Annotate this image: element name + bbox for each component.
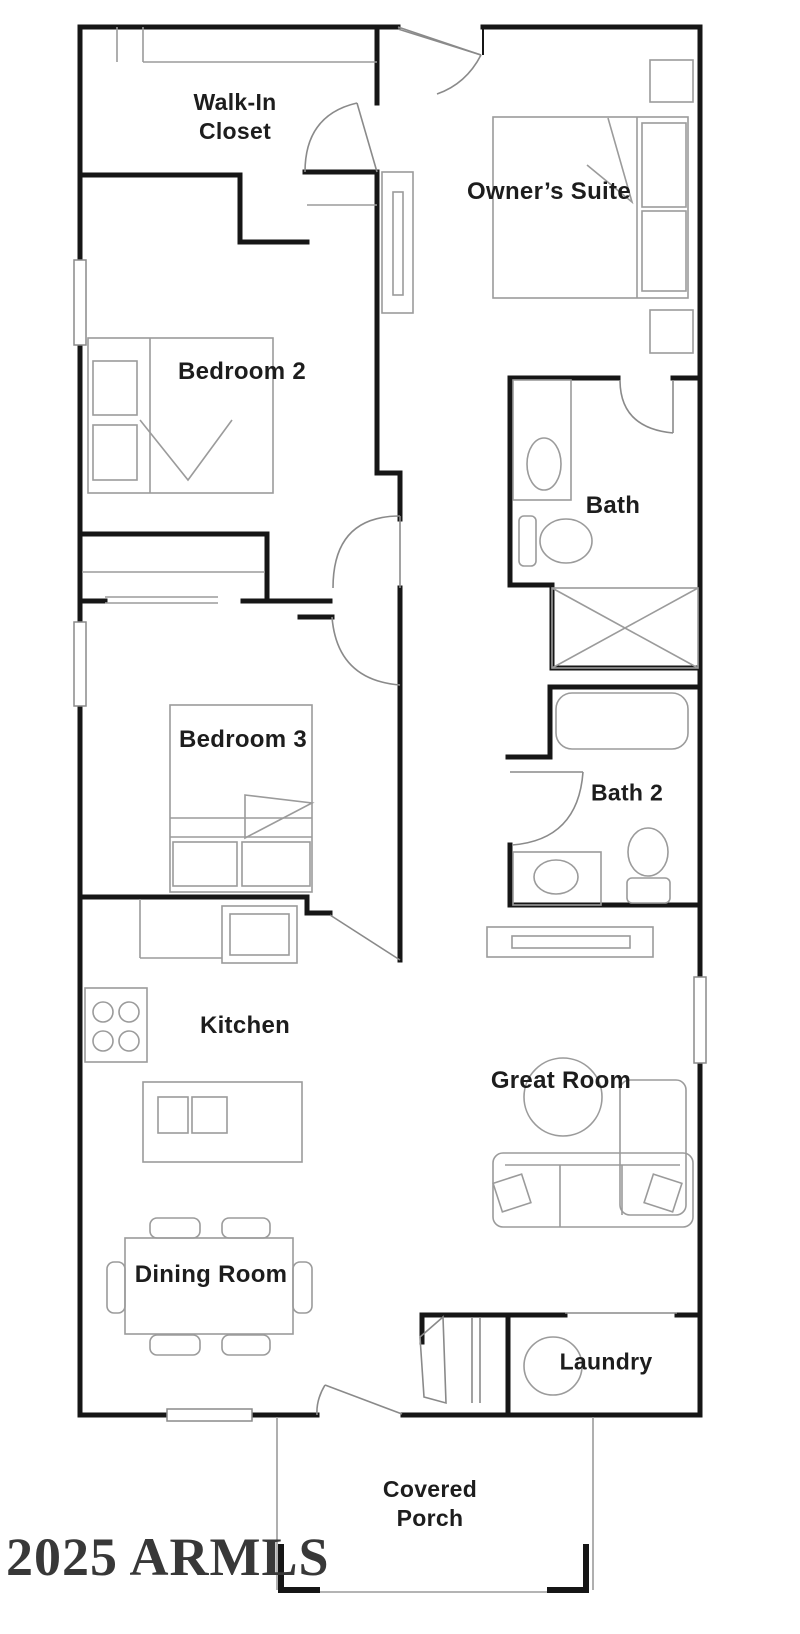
room-label-great-room: Great Room <box>491 1066 631 1096</box>
watermark: 2025 ARMLS <box>6 1526 330 1588</box>
interior-walls <box>80 27 700 1415</box>
stove-icon <box>85 988 147 1062</box>
bathtub-icon <box>556 693 688 749</box>
floor-plan: Walk-In Closet Owner’s Suite Bedroom 2 B… <box>0 0 800 1634</box>
floor-plan-drawing <box>0 0 800 1634</box>
window-icon <box>694 977 706 1063</box>
room-label-bath-2: Bath 2 <box>591 778 663 807</box>
window-icon <box>74 260 86 345</box>
room-label-covered-porch: Covered Porch <box>383 1475 477 1533</box>
door-swing-icon <box>398 29 483 94</box>
sofa-icon <box>493 1080 693 1227</box>
nightstand-icon <box>650 310 693 353</box>
room-label-dining-room: Dining Room <box>135 1260 288 1290</box>
toilet-icon <box>519 516 592 566</box>
sink-vanity-icon <box>513 852 601 905</box>
room-label-kitchen: Kitchen <box>200 1011 290 1041</box>
room-label-owners-suite: Owner’s Suite <box>467 177 631 207</box>
room-label-bath: Bath <box>586 491 641 521</box>
linen-cabinet-icon <box>382 172 413 313</box>
door-swing-icon <box>510 772 583 845</box>
counter-edge <box>140 899 222 958</box>
toilet-icon <box>627 828 670 903</box>
room-label-laundry: Laundry <box>560 1347 653 1376</box>
window-icon <box>167 1409 252 1421</box>
door-swing-icon <box>317 1385 402 1415</box>
porch-column-icon <box>550 1547 586 1590</box>
door-swing-icon <box>620 380 673 433</box>
room-label-walk-in-closet: Walk-In Closet <box>193 88 276 146</box>
bath-fixtures <box>513 380 698 668</box>
sink-vanity-icon <box>513 380 571 500</box>
wall-notch <box>398 27 481 55</box>
hall-cabinet-icon <box>487 927 653 957</box>
room-label-bedroom-2: Bedroom 2 <box>178 357 306 387</box>
nightstand-icon <box>650 60 693 102</box>
bath-2-fixtures <box>487 693 688 957</box>
window-icon <box>74 622 86 706</box>
exterior-walls <box>80 27 700 1415</box>
refrigerator-icon <box>222 906 297 963</box>
shower-icon <box>552 588 698 668</box>
door-swing-icon <box>332 617 400 685</box>
door-swing-icon <box>333 516 400 588</box>
door-swing-icon <box>330 915 400 960</box>
windows <box>74 260 706 1421</box>
door-swing-icon <box>305 103 377 172</box>
bed-icon <box>493 117 688 298</box>
kitchen-island-icon <box>143 1082 302 1162</box>
room-label-bedroom-3: Bedroom 3 <box>179 725 307 755</box>
